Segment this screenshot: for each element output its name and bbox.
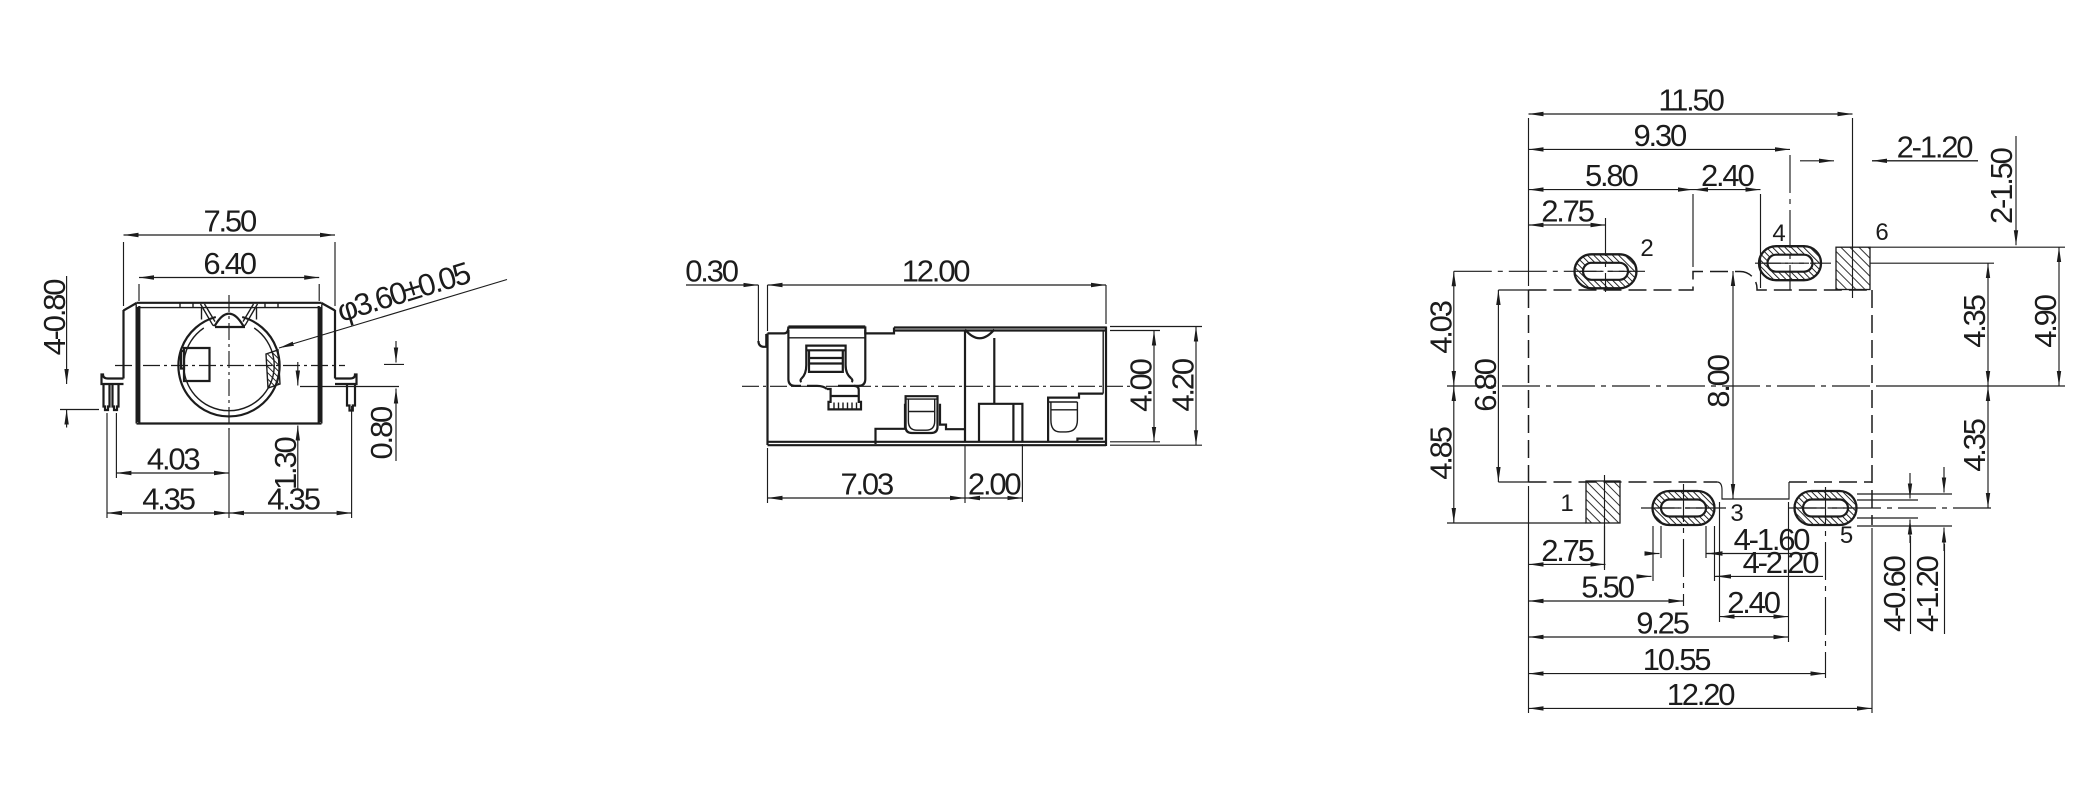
- svg-text:4.35: 4.35: [1957, 295, 1992, 347]
- svg-text:2-1.20: 2-1.20: [1897, 130, 1974, 165]
- svg-text:4.35: 4.35: [142, 482, 194, 517]
- svg-text:10.55: 10.55: [1643, 642, 1711, 677]
- svg-text:5: 5: [1840, 522, 1853, 549]
- svg-text:2.40: 2.40: [1701, 158, 1754, 193]
- svg-text:1: 1: [1560, 490, 1573, 517]
- svg-text:8.00: 8.00: [1701, 354, 1736, 407]
- svg-text:2.75: 2.75: [1541, 533, 1593, 568]
- svg-text:0.80: 0.80: [364, 406, 399, 459]
- svg-text:2.75: 2.75: [1541, 194, 1593, 229]
- svg-text:4.03: 4.03: [1423, 301, 1458, 353]
- svg-text:2: 2: [1640, 235, 1653, 262]
- svg-text:11.50: 11.50: [1658, 83, 1724, 118]
- svg-text:4.20: 4.20: [1166, 358, 1201, 411]
- svg-text:6: 6: [1875, 219, 1888, 246]
- svg-text:5.80: 5.80: [1585, 158, 1638, 193]
- svg-text:0.30: 0.30: [685, 254, 738, 289]
- svg-text:5.50: 5.50: [1581, 570, 1634, 605]
- svg-text:4.00: 4.00: [1124, 358, 1159, 411]
- svg-text:4-1.20: 4-1.20: [1910, 555, 1945, 632]
- svg-text:9.30: 9.30: [1633, 118, 1686, 153]
- svg-text:2.00: 2.00: [968, 467, 1021, 502]
- svg-text:7.50: 7.50: [203, 204, 256, 239]
- svg-text:6.80: 6.80: [1468, 358, 1503, 411]
- svg-text:9.25: 9.25: [1636, 606, 1688, 641]
- svg-text:12.20: 12.20: [1667, 677, 1736, 712]
- svg-text:4-0.60: 4-0.60: [1877, 555, 1912, 632]
- svg-text:4-0.80: 4-0.80: [37, 279, 72, 356]
- svg-text:4.03: 4.03: [147, 442, 199, 477]
- svg-text:4.35: 4.35: [267, 482, 319, 517]
- svg-text:6.40: 6.40: [203, 246, 256, 281]
- svg-text:4.85: 4.85: [1423, 427, 1458, 479]
- svg-text:7.03: 7.03: [840, 467, 892, 502]
- svg-text:2.40: 2.40: [1727, 585, 1780, 620]
- svg-text:4-2.20: 4-2.20: [1743, 545, 1820, 580]
- svg-text:2-1.50: 2-1.50: [1984, 147, 2019, 224]
- svg-text:12.00: 12.00: [902, 254, 971, 289]
- svg-text:4.90: 4.90: [2028, 294, 2063, 347]
- svg-text:4.35: 4.35: [1957, 419, 1992, 471]
- svg-text:4: 4: [1772, 220, 1785, 247]
